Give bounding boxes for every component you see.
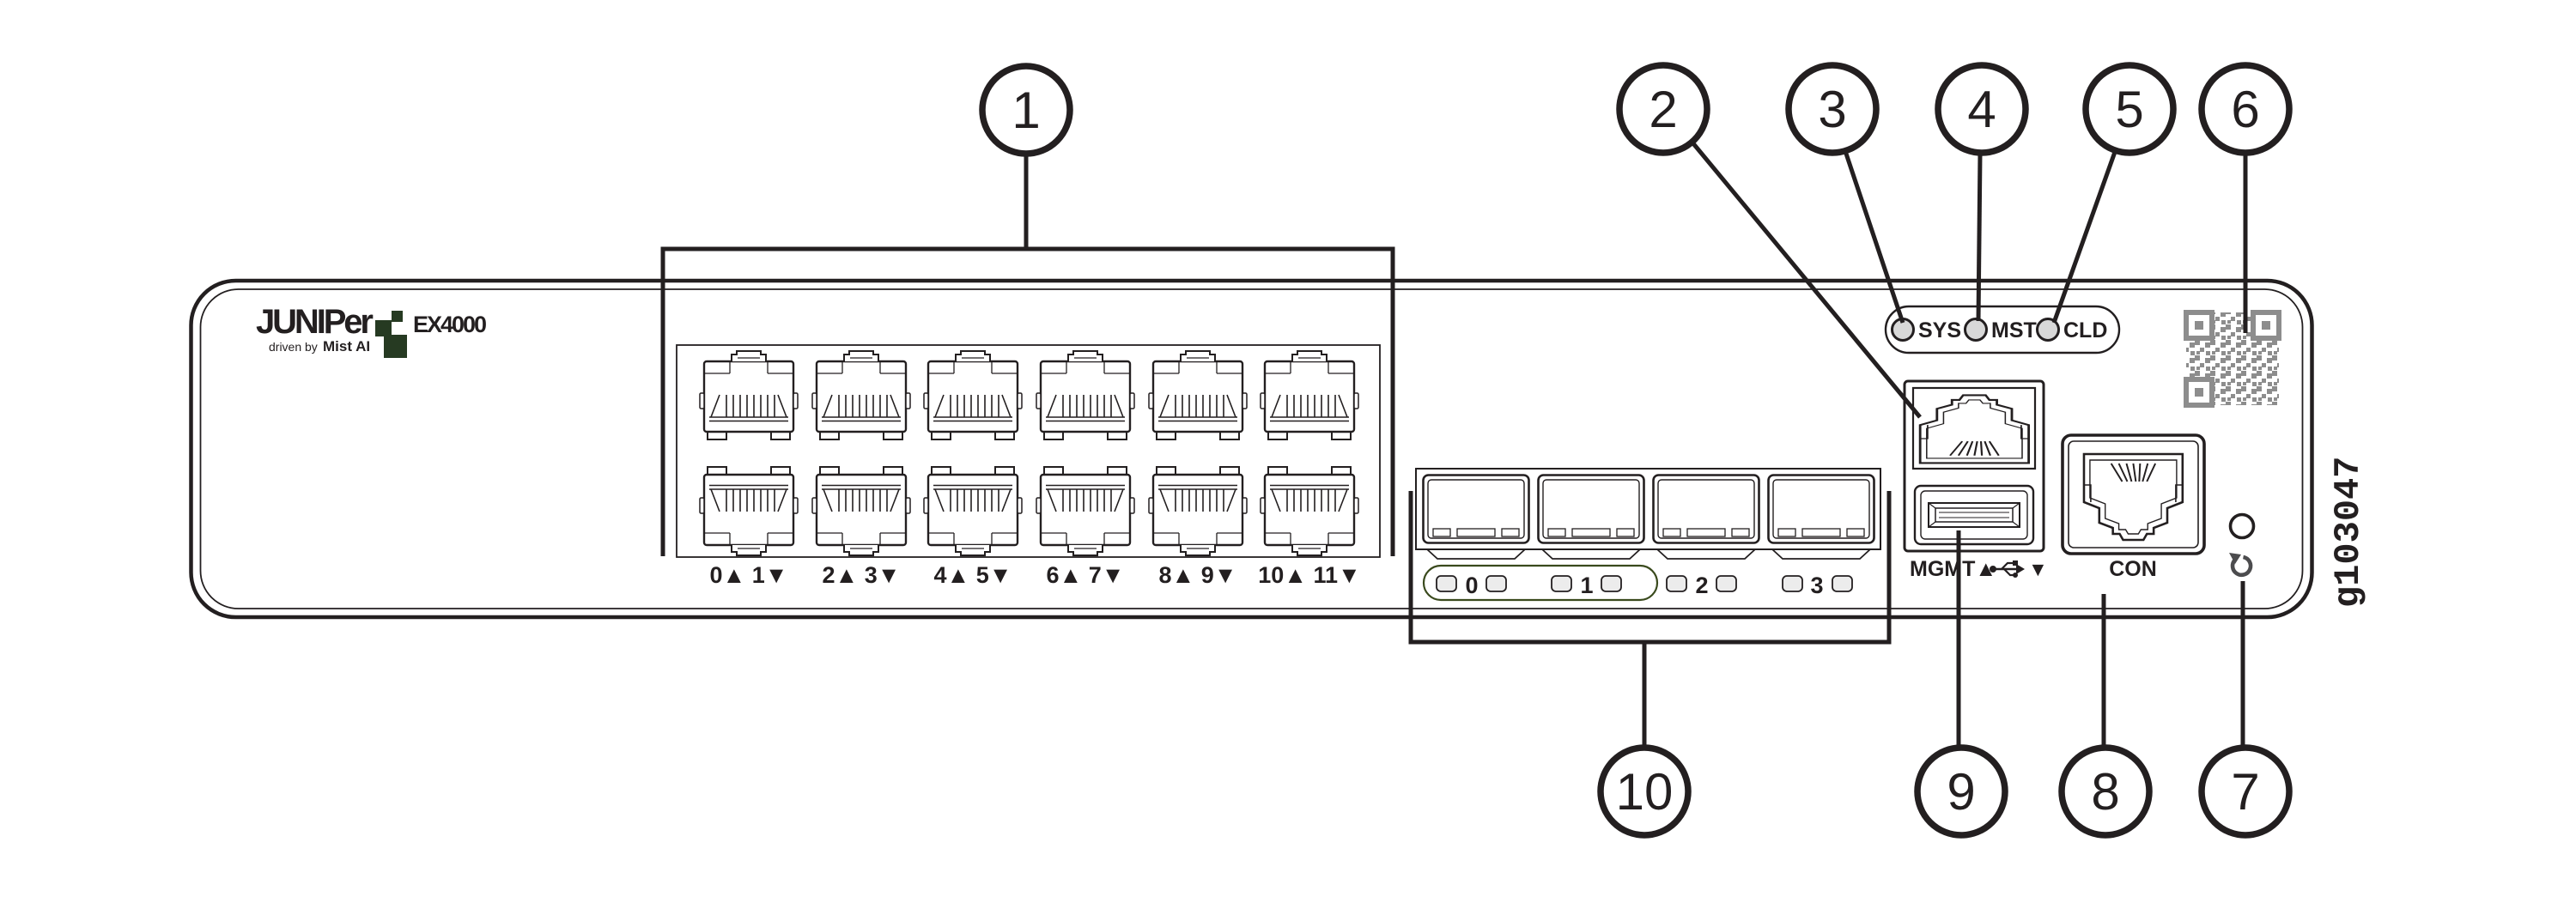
status-led-label-cld: CLD bbox=[2063, 318, 2107, 342]
port-pair-label-2: 4▲ 5▼ bbox=[934, 562, 1012, 588]
reset-pinhole bbox=[2231, 515, 2254, 538]
rj45-port-8 bbox=[1149, 351, 1247, 439]
sfp-led bbox=[1716, 576, 1736, 591]
port-pair-label-1: 2▲ 3▼ bbox=[823, 562, 901, 588]
callout-8: 8 bbox=[2062, 748, 2149, 835]
callout-leader-4 bbox=[1978, 154, 1980, 321]
callout-7: 7 bbox=[2202, 748, 2289, 835]
rj45-port-2 bbox=[812, 351, 910, 439]
console-port-label: CON bbox=[2109, 557, 2157, 581]
tagline-brand: Mist AI bbox=[323, 338, 370, 354]
callout-9: 9 bbox=[1917, 748, 2005, 835]
sfp-led bbox=[1783, 576, 1802, 591]
sfp-group-label-0: 0 bbox=[1465, 573, 1478, 598]
juniper-wordmark: JUNIPer bbox=[256, 303, 373, 341]
rj45-port-0 bbox=[700, 351, 798, 439]
sfp-cage-1 bbox=[1539, 476, 1644, 543]
rj45-port-6 bbox=[1036, 351, 1134, 439]
sfp-group-label-3: 3 bbox=[1810, 573, 1823, 598]
callout-7-number: 7 bbox=[2231, 763, 2259, 821]
sfp-led bbox=[1667, 576, 1686, 591]
port-pair-label-0: 0▲ 1▼ bbox=[710, 562, 788, 588]
sfp-cage-3 bbox=[1769, 476, 1874, 543]
status-led-mst bbox=[1965, 319, 1987, 341]
rj45-port-4 bbox=[924, 351, 1022, 439]
callout-10-number: 10 bbox=[1616, 763, 1674, 821]
port-pair-label-4: 8▲ 9▼ bbox=[1159, 562, 1237, 588]
callout-6: 6 bbox=[2202, 65, 2289, 153]
port-pair-label-3: 6▲ 7▼ bbox=[1047, 562, 1125, 588]
usb-port bbox=[1915, 486, 2033, 544]
callout-4: 4 bbox=[1938, 65, 2026, 153]
callout-9-number: 9 bbox=[1947, 763, 1975, 821]
callout-3: 3 bbox=[1789, 65, 1876, 153]
sfp-group-label-2: 2 bbox=[1695, 573, 1708, 598]
callout-8-number: 8 bbox=[2091, 763, 2119, 821]
sfp-led bbox=[1437, 576, 1456, 591]
usb-down-arrow: ▼ bbox=[2028, 558, 2048, 580]
status-led-label-mst: MST bbox=[1991, 318, 2037, 342]
sfp-cage-2 bbox=[1654, 476, 1759, 543]
sfp-led bbox=[1601, 576, 1621, 591]
rj45-port-9 bbox=[1149, 467, 1247, 555]
sfp-cage-0 bbox=[1424, 476, 1529, 543]
status-led-label-sys: SYS bbox=[1918, 318, 1961, 342]
tagline-prefix: driven by bbox=[269, 340, 318, 354]
rj45-port-3 bbox=[812, 467, 910, 555]
rj45-port-7 bbox=[1036, 467, 1134, 555]
rj45-port-10 bbox=[1261, 351, 1358, 439]
mgmt-port bbox=[1913, 388, 2035, 469]
callout-2: 2 bbox=[1619, 65, 1707, 153]
callout-5: 5 bbox=[2086, 65, 2173, 153]
qr-code bbox=[2186, 312, 2279, 405]
model-label: EX4000 bbox=[413, 312, 488, 337]
sfp-led bbox=[1552, 576, 1571, 591]
figure-id: g103047 bbox=[2328, 457, 2369, 608]
ex4000-front-panel-diagram: JUNIPer driven by Mist AI EX4000 0▲ 1▼ 2… bbox=[0, 0, 2576, 915]
callout-2-number: 2 bbox=[1649, 81, 1677, 138]
mgmt-usb-panel: MGMT▲ ▼ bbox=[1905, 381, 2048, 581]
status-led-panel: SYS MST CLD bbox=[1886, 306, 2119, 353]
mgmt-port-label: MGMT▲ bbox=[1910, 557, 1996, 581]
sfp-led bbox=[1832, 576, 1852, 591]
rj45-port-11 bbox=[1261, 467, 1358, 555]
callout-4-number: 4 bbox=[1967, 81, 1996, 138]
sfp-group-label-1: 1 bbox=[1580, 573, 1593, 598]
sfp-led bbox=[1486, 576, 1506, 591]
callout-10: 10 bbox=[1601, 748, 1688, 835]
callout-1: 1 bbox=[982, 66, 1070, 154]
rj45-port-1 bbox=[700, 467, 798, 555]
callout-3-number: 3 bbox=[1818, 81, 1846, 138]
rj45-port-5 bbox=[924, 467, 1022, 555]
callout-6-number: 6 bbox=[2231, 81, 2259, 138]
callout-1-number: 1 bbox=[1012, 82, 1040, 139]
diagram-canvas: JUNIPer driven by Mist AI EX4000 0▲ 1▼ 2… bbox=[0, 0, 2576, 915]
callout-5-number: 5 bbox=[2115, 81, 2143, 138]
port-pair-label-5: 10▲ 11▼ bbox=[1258, 562, 1361, 588]
